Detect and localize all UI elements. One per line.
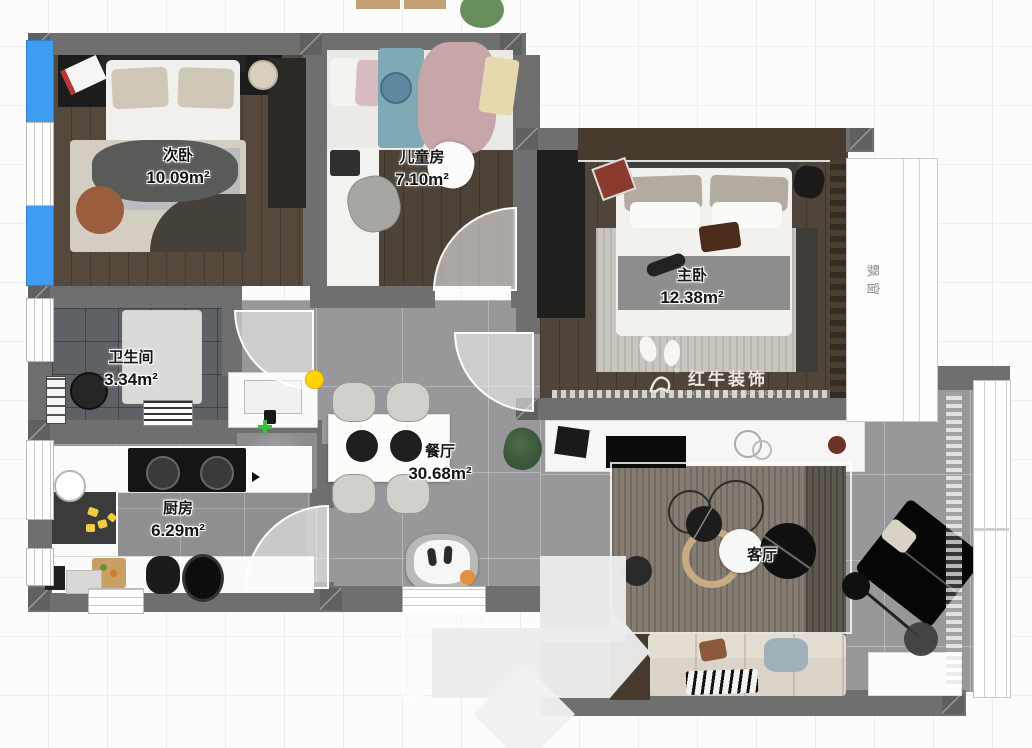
room-name: 次卧 <box>146 144 209 165</box>
zebra-mat[interactable] <box>686 669 759 695</box>
entry-annotation-arrow-tip <box>610 606 650 698</box>
floor-lamp-base <box>904 622 938 656</box>
window[interactable] <box>26 298 54 362</box>
wall <box>310 286 435 308</box>
air-fryer[interactable] <box>182 554 224 602</box>
room-name: 儿童房 <box>395 146 449 167</box>
room-label-dining: 餐厅 30.68m² <box>408 440 471 484</box>
wall-joint <box>300 33 322 55</box>
room-area: 3.34m² <box>104 370 158 390</box>
towel-rack[interactable] <box>143 400 193 426</box>
window[interactable] <box>26 548 54 586</box>
room-area: 10.09m² <box>146 168 209 188</box>
pillow <box>111 67 169 110</box>
coffee-table-small[interactable] <box>686 506 722 542</box>
room-name: 厨房 <box>151 497 205 518</box>
balcony-deco <box>404 0 446 9</box>
window[interactable] <box>88 588 144 614</box>
kettle[interactable] <box>146 556 180 594</box>
balcony-deco <box>356 0 400 9</box>
curtain[interactable] <box>946 392 962 688</box>
dining-chair[interactable] <box>332 474 376 514</box>
wardrobe-master-top[interactable] <box>578 128 846 162</box>
room-name: 卫生间 <box>104 346 158 367</box>
wall <box>516 398 874 420</box>
wardrobe-master[interactable] <box>537 150 585 318</box>
room-label-kitchen: 厨房 6.29m² <box>151 497 205 541</box>
dining-chair[interactable] <box>386 382 430 422</box>
room-label-kids-room: 儿童房 7.10m² <box>395 146 449 190</box>
wall <box>303 55 329 286</box>
plant[interactable] <box>460 0 504 28</box>
vase <box>752 440 772 460</box>
room-name: 主卧 <box>660 264 723 285</box>
entry-door[interactable] <box>402 586 486 614</box>
vegetable <box>110 570 117 577</box>
bowl <box>828 436 846 454</box>
bay-window-label: 飘窗 <box>865 264 884 300</box>
bull-logo-icon: ® <box>647 372 673 396</box>
room-area: 6.29m² <box>151 521 205 541</box>
marker-dot-yellow <box>305 370 324 389</box>
wall-joint <box>28 588 50 610</box>
room-label-secondary-bedroom: 次卧 10.09m² <box>146 144 209 188</box>
sofa-blanket <box>764 638 808 672</box>
balcony-window-blue[interactable] <box>26 204 54 286</box>
placemat <box>346 430 378 462</box>
burner <box>146 456 180 490</box>
room-label-master-bedroom: 主卧 12.38m² <box>660 264 723 308</box>
room-label-living: 客厅 <box>747 544 777 565</box>
room-label-bathroom: 卫生间 3.34m² <box>104 346 158 390</box>
sofa-back-cushions <box>648 634 846 658</box>
round-pillow <box>380 72 412 104</box>
room-name: 客厅 <box>747 544 777 565</box>
wall <box>482 586 544 612</box>
pet-ball <box>460 570 475 585</box>
room-area: 12.38m² <box>660 288 723 308</box>
marker-cross-green <box>258 420 272 434</box>
speaker <box>330 150 360 176</box>
brand-watermark: ® 红牛装饰 HONG NIU DECORATION <box>647 371 776 397</box>
throw-pillow <box>698 221 741 252</box>
brand-subtitle: HONG NIU DECORATION <box>679 391 776 397</box>
brand-name: 红牛装饰 <box>679 371 776 388</box>
window-divider <box>973 528 1009 531</box>
pouf[interactable] <box>76 186 124 234</box>
sink-bowl[interactable] <box>70 372 108 410</box>
media-box <box>554 426 590 458</box>
burner <box>200 456 234 490</box>
window[interactable] <box>26 440 54 520</box>
wall-joint <box>516 128 538 150</box>
wall-joint <box>850 128 872 150</box>
kitchen-sink[interactable] <box>54 470 86 502</box>
pillow <box>177 67 234 109</box>
room-name: 餐厅 <box>408 440 471 461</box>
balcony-window-blue[interactable] <box>26 40 54 124</box>
room-area: 7.10m² <box>395 170 449 190</box>
shoe <box>443 546 452 565</box>
pillow <box>630 202 700 228</box>
room-area: 30.68m² <box>408 464 471 484</box>
window[interactable] <box>973 380 1011 698</box>
lemon <box>86 524 95 532</box>
floor-lamp-shade[interactable] <box>842 572 870 600</box>
dining-chair[interactable] <box>332 382 376 422</box>
shelf[interactable] <box>46 376 66 424</box>
window[interactable] <box>26 122 54 206</box>
wall-joint <box>320 588 342 610</box>
registered-mark: ® <box>674 368 679 375</box>
table-lamp[interactable] <box>248 60 278 90</box>
floor-plan-canvas: 飘窗 <box>0 0 1032 748</box>
washer-marker <box>252 472 260 482</box>
rug-edge <box>796 228 818 372</box>
wall <box>513 55 540 288</box>
bay-window[interactable] <box>846 158 938 422</box>
wall <box>28 286 242 308</box>
